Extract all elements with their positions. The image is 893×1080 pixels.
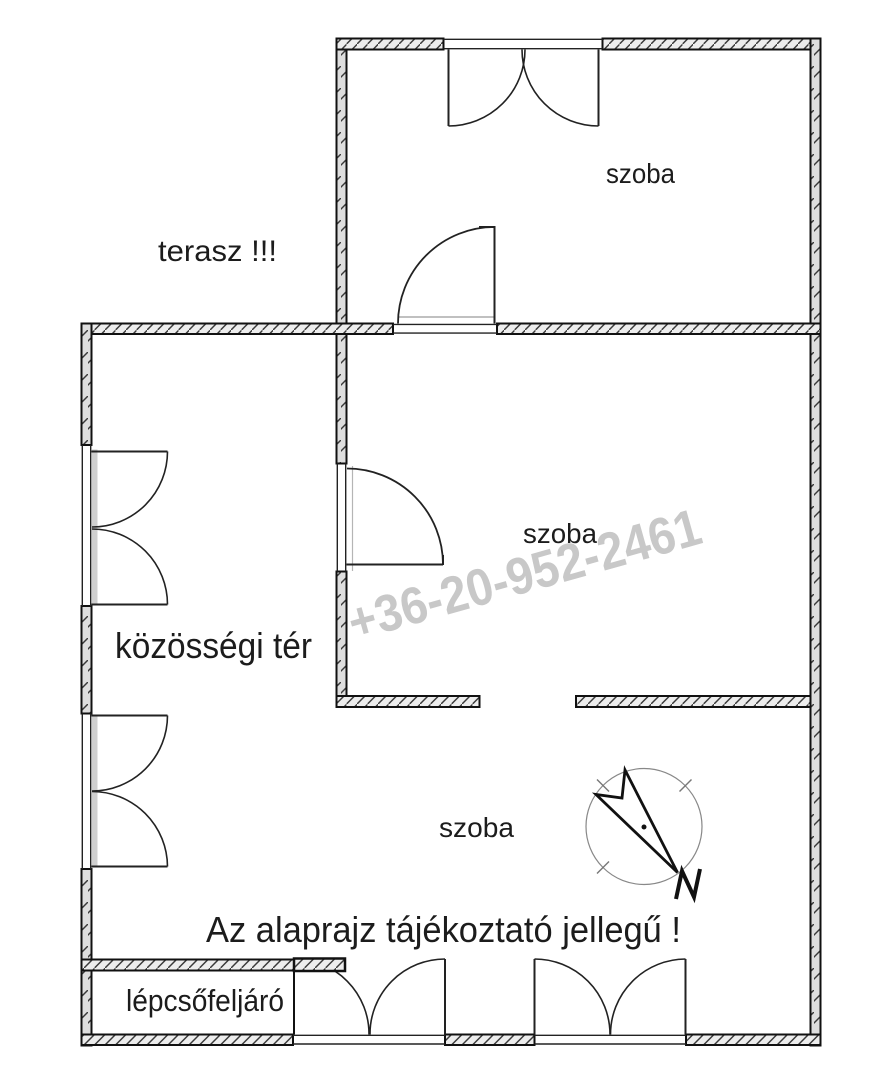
svg-text:Az alaprajz tájékoztató jelleg: Az alaprajz tájékoztató jellegű ! bbox=[206, 909, 681, 950]
svg-text:terasz !!!: terasz !!! bbox=[158, 235, 277, 268]
svg-text:lépcsőfeljáró: lépcsőfeljáró bbox=[126, 983, 284, 1018]
svg-text:szoba: szoba bbox=[439, 812, 514, 843]
svg-text:közösségi tér: közösségi tér bbox=[115, 625, 312, 666]
svg-text:szoba: szoba bbox=[606, 158, 675, 189]
svg-text:szoba: szoba bbox=[523, 518, 597, 549]
